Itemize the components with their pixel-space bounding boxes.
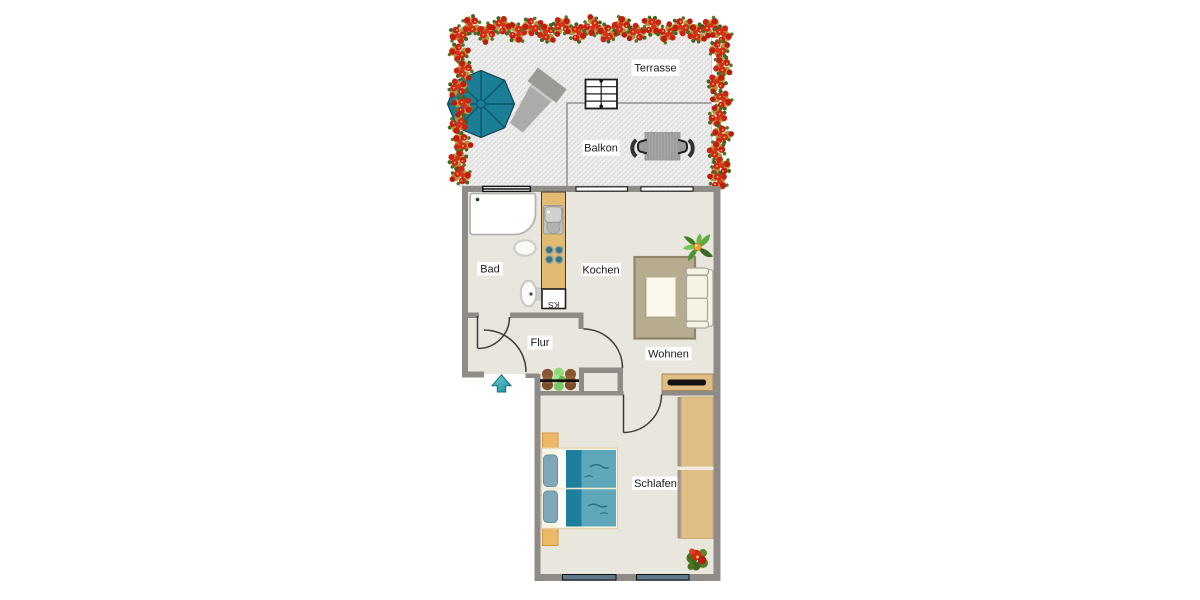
svg-text:Wohnen: Wohnen [648,349,689,361]
svg-text:Terrasse: Terrasse [634,63,676,75]
svg-text:Schlafen: Schlafen [634,478,677,490]
svg-text:Bad: Bad [480,264,500,276]
svg-text:KS: KS [548,300,560,310]
svg-text:Flur: Flur [531,337,550,349]
svg-text:Kochen: Kochen [582,265,619,277]
svg-text:Balkon: Balkon [584,143,618,155]
